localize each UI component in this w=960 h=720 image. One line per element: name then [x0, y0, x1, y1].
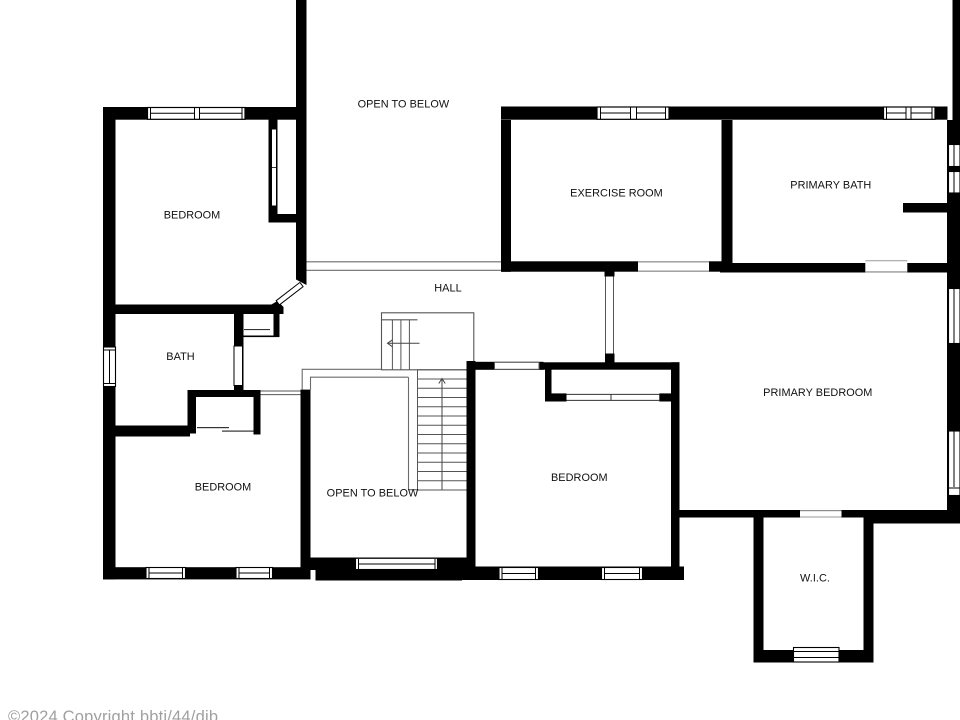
svg-text:PRIMARY BATH: PRIMARY BATH [790, 179, 871, 191]
svg-text:W.I.C.: W.I.C. [800, 573, 830, 585]
svg-text:BEDROOM: BEDROOM [164, 210, 221, 222]
svg-text:©2024 Copyright bbti/44/dib: ©2024 Copyright bbti/44/dib [8, 708, 218, 720]
svg-text:HALL: HALL [434, 283, 461, 295]
svg-text:BEDROOM: BEDROOM [551, 472, 608, 484]
svg-text:BEDROOM: BEDROOM [195, 481, 252, 493]
svg-text:EXERCISE ROOM: EXERCISE ROOM [570, 188, 663, 200]
svg-text:PRIMARY BEDROOM: PRIMARY BEDROOM [763, 387, 872, 399]
svg-text:OPEN TO BELOW: OPEN TO BELOW [327, 487, 419, 499]
svg-text:BATH: BATH [166, 351, 194, 363]
svg-text:OPEN TO BELOW: OPEN TO BELOW [358, 98, 450, 110]
